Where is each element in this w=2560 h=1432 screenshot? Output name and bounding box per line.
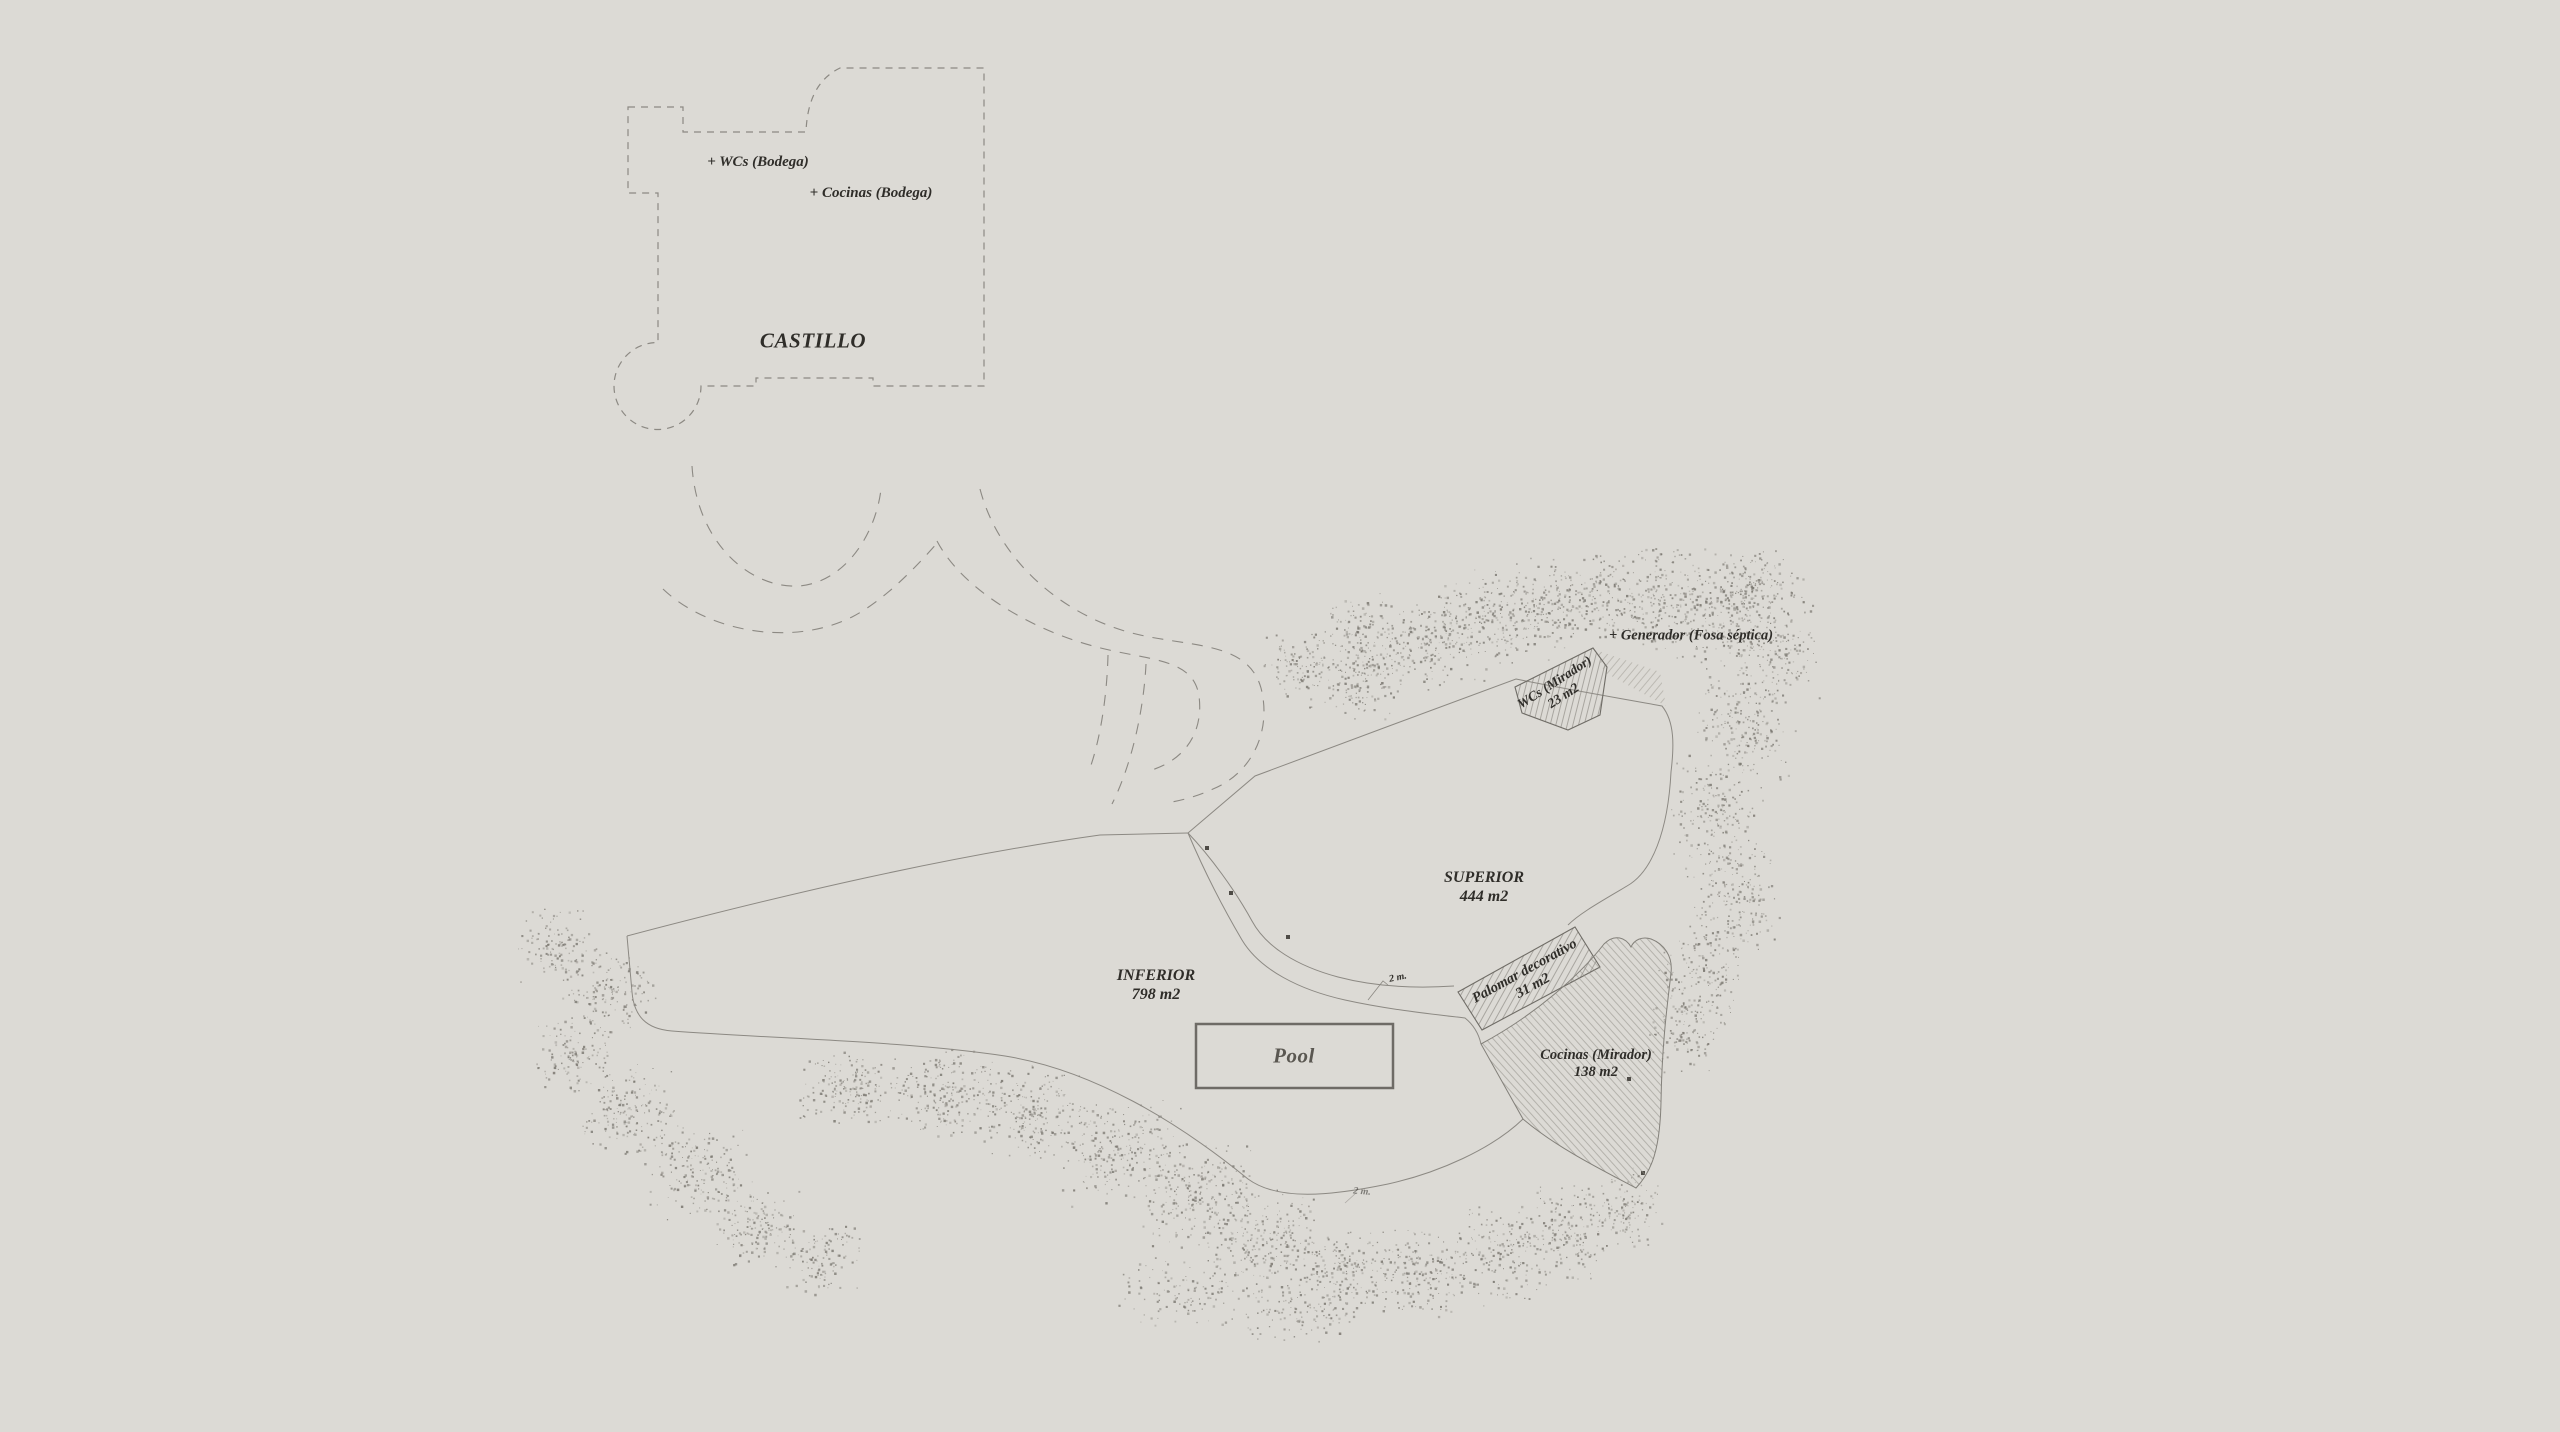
- inferior-zone-name: INFERIOR: [1117, 967, 1195, 986]
- superior-zone-label: SUPERIOR 444 m2: [1444, 869, 1524, 907]
- castle-outline: [614, 68, 984, 429]
- cocinas-bodega-label: + Cocinas (Bodega): [810, 185, 933, 203]
- superior-zone-area: 444 m2: [1444, 888, 1524, 907]
- cocinas-mirador-name: Cocinas (Mirador): [1540, 1047, 1652, 1064]
- site-plan-canvas: + WCs (Bodega) + Cocinas (Bodega) CASTIL…: [0, 0, 2560, 1432]
- footpath-dashed: [937, 489, 1264, 804]
- driveway-paths: [663, 466, 938, 633]
- inferior-zone-area: 798 m2: [1117, 986, 1195, 1005]
- pool-label: Pool: [1273, 1044, 1315, 1069]
- generador-label: + Generador (Fosa séptica): [1609, 627, 1773, 644]
- inferior-zone-label: INFERIOR 798 m2: [1117, 967, 1195, 1005]
- cocinas-mirador-area: 138 m2: [1540, 1064, 1652, 1081]
- superior-zone-name: SUPERIOR: [1444, 869, 1524, 888]
- terrace-outlines: [627, 679, 1673, 1203]
- wcs-bodega-label: + WCs (Bodega): [707, 154, 809, 172]
- site-plan-drawing: [0, 0, 2560, 1432]
- cocinas-mirador-label: Cocinas (Mirador) 138 m2: [1540, 1047, 1652, 1081]
- path-width-label-lower: 2 m.: [1353, 1185, 1372, 1198]
- castle-title: CASTILLO: [760, 329, 866, 354]
